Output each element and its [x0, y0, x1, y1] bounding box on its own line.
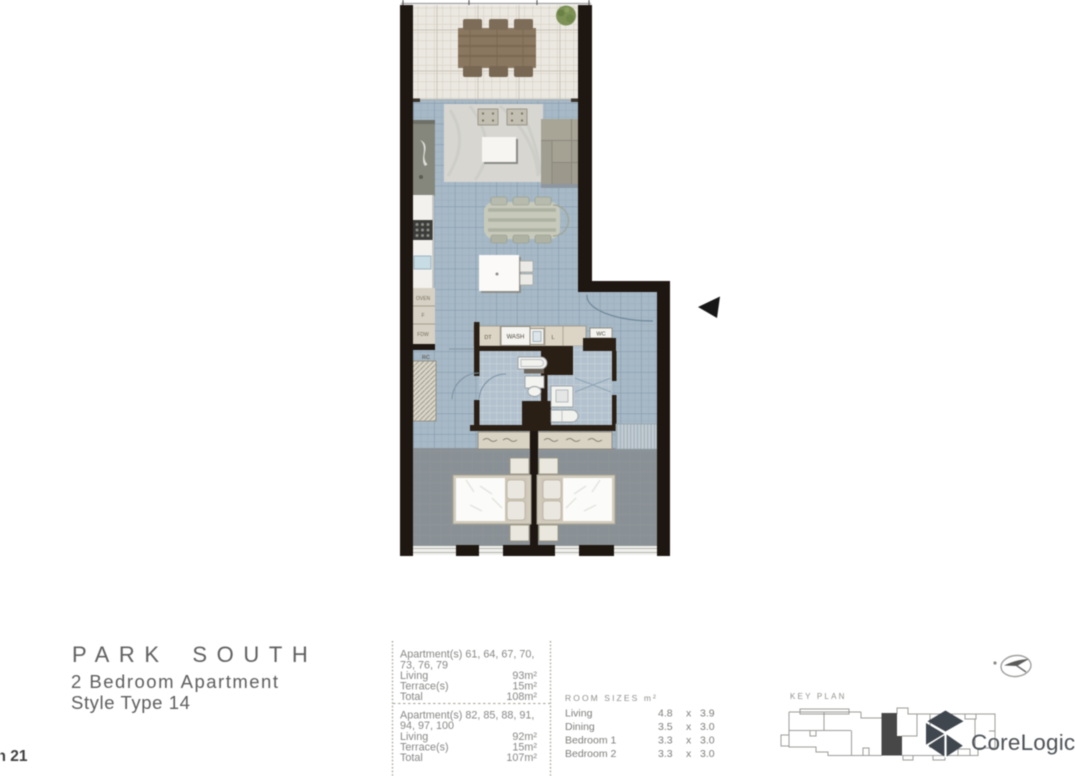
svg-text:x: x — [686, 708, 692, 720]
svg-text:x: x — [686, 735, 692, 747]
svg-text:Style Type 14: Style Type 14 — [71, 692, 191, 713]
svg-text:3.3: 3.3 — [658, 748, 673, 760]
svg-text:4.8: 4.8 — [658, 708, 673, 720]
svg-text:107m²: 107m² — [506, 752, 537, 764]
svg-text:DT: DT — [484, 335, 492, 341]
svg-text:OVEN: OVEN — [416, 296, 431, 302]
svg-text:WC: WC — [596, 332, 605, 338]
svg-text:3.3: 3.3 — [658, 735, 673, 747]
svg-text:F: F — [421, 313, 424, 319]
svg-text:WASH: WASH — [507, 335, 525, 341]
svg-text:ROOM SIZES m²: ROOM SIZES m² — [565, 693, 658, 703]
svg-text:RC: RC — [422, 355, 430, 361]
svg-text:FDW: FDW — [417, 332, 429, 338]
svg-text:2 Bedroom Apartment: 2 Bedroom Apartment — [71, 671, 279, 692]
svg-text:KEY PLAN: KEY PLAN — [790, 692, 847, 701]
svg-text:3.9: 3.9 — [700, 708, 715, 720]
svg-text:Total: Total — [400, 752, 423, 764]
svg-text:108m²: 108m² — [506, 691, 537, 703]
svg-text:Living: Living — [565, 708, 593, 720]
svg-text:Total: Total — [400, 691, 423, 703]
svg-text:L: L — [551, 335, 554, 341]
svg-text:3.0: 3.0 — [700, 748, 715, 760]
svg-text:x: x — [686, 748, 692, 760]
svg-text:Bedroom 1: Bedroom 1 — [565, 735, 617, 747]
svg-text:Bedroom 2: Bedroom 2 — [565, 748, 617, 760]
svg-text:CoreLogic: CoreLogic — [971, 730, 1075, 755]
svg-text:3.0: 3.0 — [700, 721, 715, 733]
svg-text:n 21: n 21 — [0, 748, 28, 765]
svg-text:x: x — [686, 721, 692, 733]
svg-text:PARK SOUTH: PARK SOUTH — [72, 642, 317, 667]
svg-text:3.5: 3.5 — [658, 721, 673, 733]
svg-text:Dining: Dining — [565, 721, 595, 733]
svg-text:3.0: 3.0 — [700, 735, 715, 747]
